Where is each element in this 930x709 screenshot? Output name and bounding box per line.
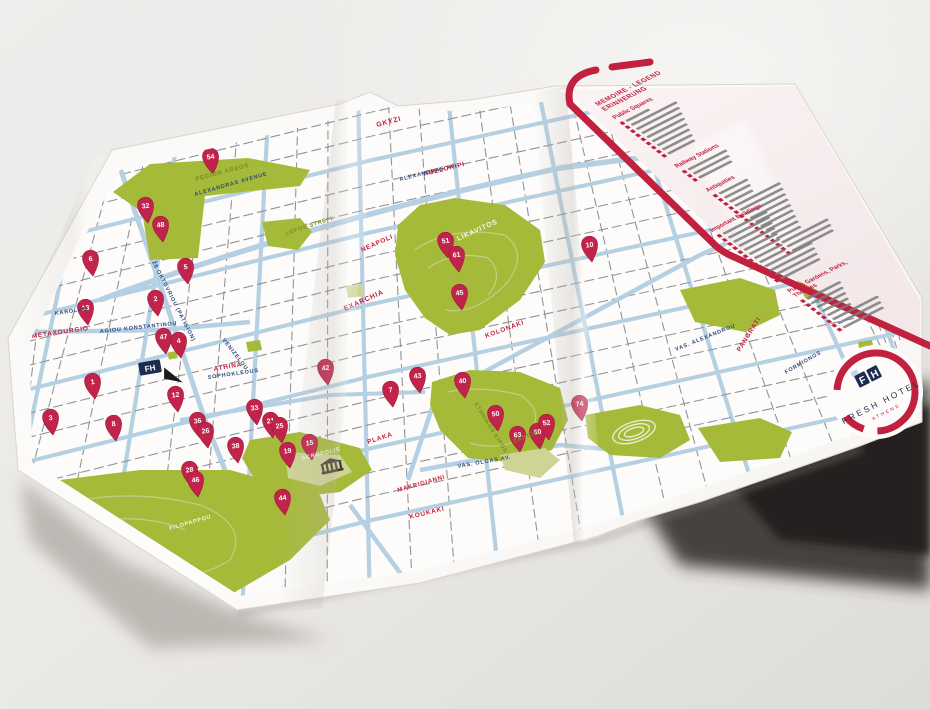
pin-number: 38 [231, 443, 240, 451]
pin-number: 40 [458, 378, 467, 386]
pin-number: 25 [275, 423, 284, 431]
pin-number: 19 [283, 448, 292, 456]
park-shape [246, 340, 262, 352]
pin-number: 61 [452, 252, 461, 260]
map-photo: FH54324865291347413851614510427123321382… [0, 0, 930, 709]
pin-number: 54 [206, 154, 215, 162]
pin-number: 52 [542, 420, 551, 428]
pin-number: 12 [171, 392, 180, 400]
pin-number: 45 [455, 290, 464, 298]
pin-number: 50 [491, 411, 500, 419]
pin-number: 51 [441, 238, 450, 246]
pin-number: 10 [585, 242, 594, 250]
pin-number: 33 [250, 405, 259, 413]
pin-number: 32 [141, 203, 150, 211]
pin-number: 44 [278, 495, 287, 503]
pin-number: 46 [191, 477, 200, 485]
pin-number: 26 [201, 428, 210, 436]
photo-scene: FH54324865291347413851614510427123321382… [0, 0, 930, 709]
hotel-marker-monogram: FH [144, 363, 156, 374]
pin-number: 47 [159, 334, 168, 342]
legend-frame-line [612, 62, 650, 67]
pin-number: 48 [156, 222, 165, 230]
pin-number: 43 [413, 373, 422, 381]
